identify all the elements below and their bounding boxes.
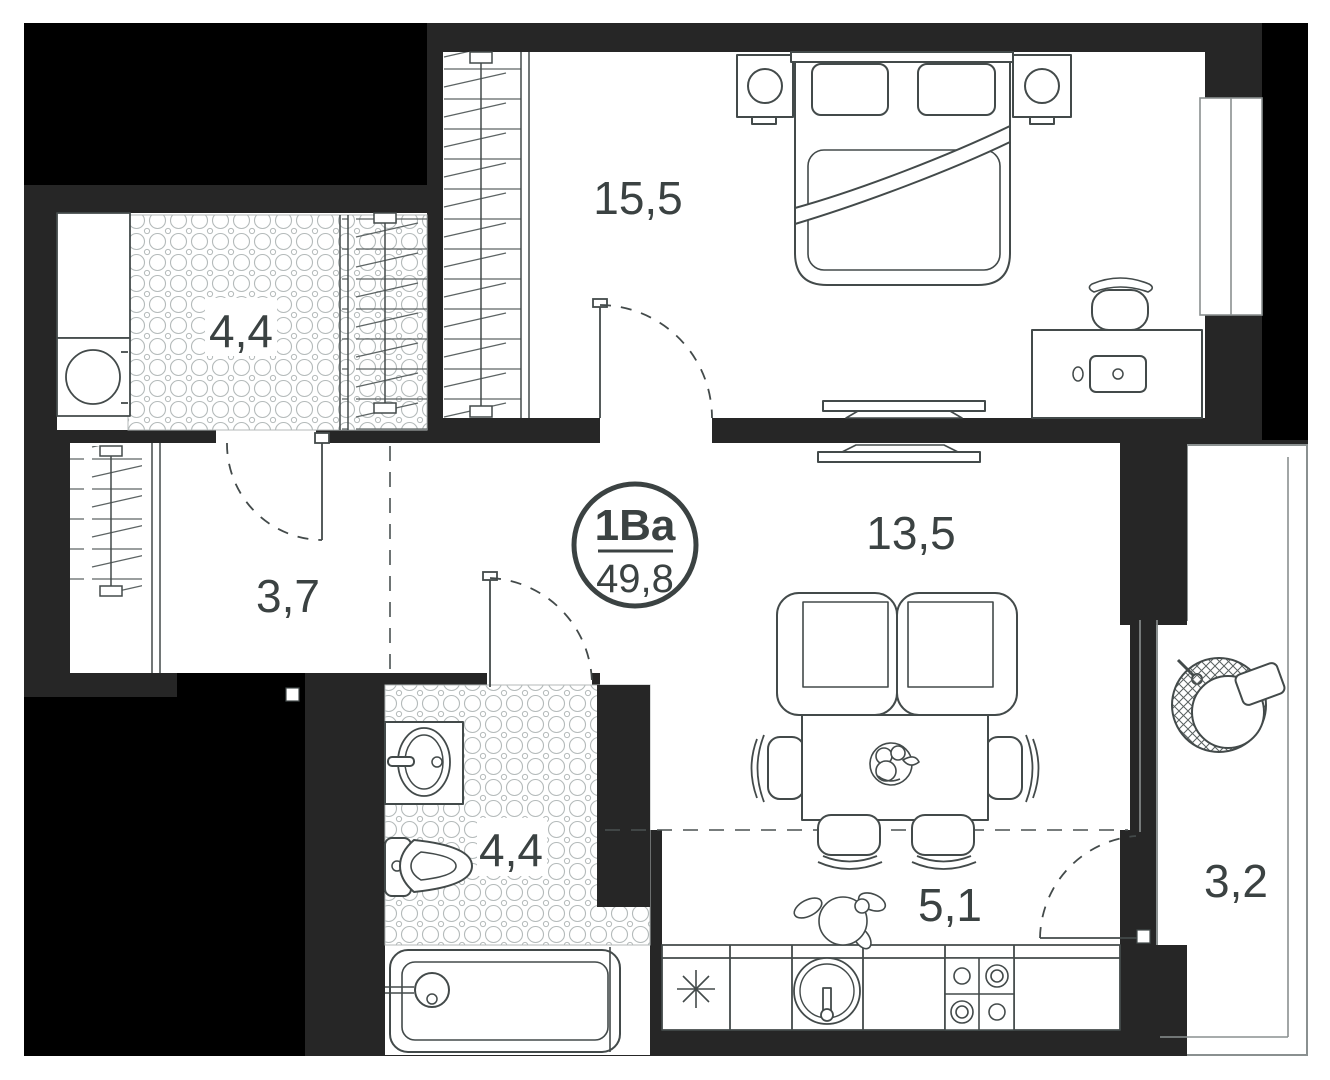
dining-table-icon — [802, 715, 988, 820]
stove-icon — [945, 958, 1014, 1030]
label-bathroom-area: 4,4 — [479, 824, 543, 876]
void-bottom-left — [24, 697, 305, 1056]
label-loggia-area: 4,4 — [209, 305, 273, 357]
bedroom-doorway — [600, 418, 712, 445]
wall-living-right — [1120, 443, 1187, 625]
washing-machine-icon — [57, 338, 130, 416]
unit-badge: 1Ва 49,8 — [574, 484, 696, 606]
wardrobe-bedroom — [443, 52, 529, 418]
double-bed-icon — [791, 52, 1013, 285]
void-right — [1262, 23, 1308, 440]
nightstand-left-icon — [737, 55, 793, 124]
kitchen-sink-icon — [794, 958, 860, 1024]
desk-chair-seat — [1092, 290, 1148, 330]
label-balcony-area: 3,2 — [1204, 855, 1268, 907]
label-bedroom-area: 15,5 — [593, 172, 683, 224]
loggia-furniture — [57, 213, 130, 416]
sofa-icon — [777, 593, 1017, 715]
bathtub-icon — [385, 947, 620, 1052]
unit-type-label: 1Ва — [595, 501, 676, 550]
loggia-counter — [57, 213, 130, 338]
wardrobe-loggia — [340, 213, 427, 430]
wall-kitchen-right — [1120, 945, 1187, 1056]
floor-plan-page: 15,5 4,4 3,7 13,5 4,4 5,1 3,2 1Ва 49,8 — [0, 0, 1330, 1080]
room-hallway — [70, 443, 600, 673]
void-top-left — [24, 23, 427, 185]
unit-total-area: 49,8 — [596, 557, 674, 601]
bathroom-sink-icon — [385, 722, 463, 804]
label-kitchen-area: 5,1 — [918, 879, 982, 931]
floor-plan: 15,5 4,4 3,7 13,5 4,4 5,1 3,2 1Ва 49,8 — [0, 0, 1330, 1080]
label-living-area: 13,5 — [866, 507, 956, 559]
nightstand-right-icon — [1013, 55, 1071, 124]
mouse-icon — [1073, 367, 1083, 381]
wall-bathroom-top-right — [597, 685, 650, 907]
loggia-doorway — [216, 428, 316, 445]
label-hallway-area: 3,7 — [256, 570, 320, 622]
